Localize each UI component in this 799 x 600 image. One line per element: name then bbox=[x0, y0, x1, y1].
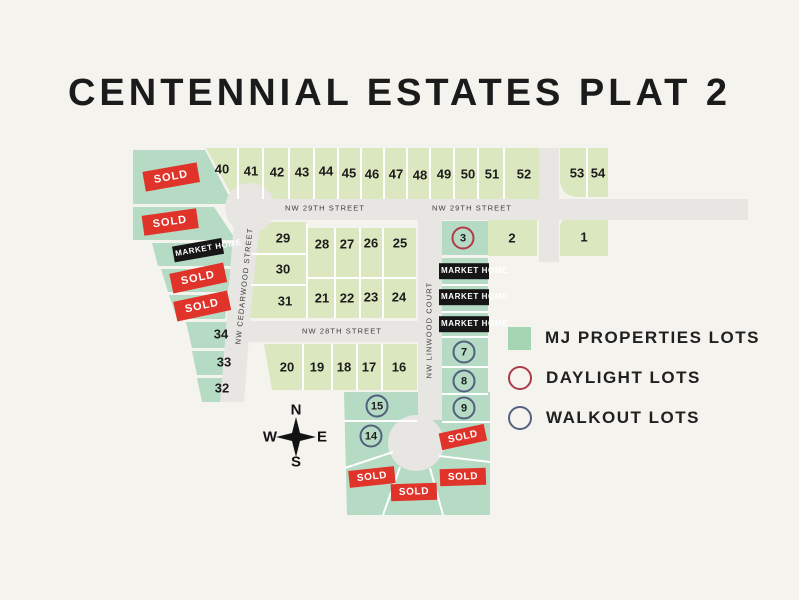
compass-west-label: W bbox=[263, 429, 277, 446]
lot-number: 31 bbox=[278, 294, 292, 309]
sold-badge: SOLD bbox=[142, 162, 199, 191]
lot-number: 23 bbox=[364, 290, 378, 305]
walkout-lot-number: 14 bbox=[360, 425, 383, 448]
lot-number: 43 bbox=[295, 165, 309, 180]
map-labels: 4041424344454647484950515253542129303128… bbox=[0, 0, 799, 600]
lot-number: 25 bbox=[393, 236, 407, 251]
street-name-label: NW 28TH STREET bbox=[302, 327, 382, 336]
lot-number: 28 bbox=[315, 237, 329, 252]
lot-number: 44 bbox=[319, 164, 333, 179]
street-name-label: NW 29TH STREET bbox=[432, 204, 512, 213]
lot-number: 16 bbox=[392, 360, 406, 375]
lot-number: 18 bbox=[337, 360, 351, 375]
legend-label-mj-properties: MJ PROPERTIES LOTS bbox=[545, 328, 760, 348]
lot-number: 52 bbox=[517, 167, 531, 182]
walkout-lot-number: 9 bbox=[453, 397, 476, 420]
sold-badge: SOLD bbox=[142, 208, 199, 235]
market-home-badge: MARKET HOME bbox=[172, 238, 224, 262]
sold-badge: SOLD bbox=[440, 468, 487, 487]
lot-number: 53 bbox=[570, 166, 584, 181]
lot-number: 19 bbox=[310, 360, 324, 375]
compass-east-label: E bbox=[317, 429, 327, 446]
street-name-label: NW 29TH STREET bbox=[285, 204, 365, 213]
sold-badge: SOLD bbox=[169, 263, 227, 294]
lot-number: 47 bbox=[389, 167, 403, 182]
compass-rose: N E S W bbox=[256, 397, 336, 477]
green-square-swatch-icon bbox=[508, 327, 531, 350]
compass-south-label: S bbox=[291, 454, 301, 471]
sold-badge: SOLD bbox=[439, 424, 488, 450]
legend-item-mj-properties-lots: MJ PROPERTIES LOTS bbox=[508, 325, 760, 351]
street-name-label: NW LINWOOD COURT bbox=[425, 282, 434, 379]
legend-label-daylight: DAYLIGHT LOTS bbox=[546, 368, 701, 388]
lot-number: 24 bbox=[392, 290, 406, 305]
lot-number: 22 bbox=[340, 291, 354, 306]
lot-number: 21 bbox=[315, 291, 329, 306]
lot-number: 33 bbox=[217, 355, 231, 370]
lot-number: 50 bbox=[461, 167, 475, 182]
lot-number: 34 bbox=[214, 327, 228, 342]
walkout-lot-number: 8 bbox=[453, 370, 476, 393]
lot-number: 29 bbox=[276, 231, 290, 246]
lot-number: 20 bbox=[280, 360, 294, 375]
lot-number: 54 bbox=[591, 166, 605, 181]
compass-north-label: N bbox=[291, 402, 302, 419]
lot-number: 41 bbox=[244, 164, 258, 179]
market-home-badge: MARKET HOME bbox=[439, 289, 489, 305]
sold-badge: SOLD bbox=[173, 291, 231, 322]
legend-label-walkout: WALKOUT LOTS bbox=[546, 408, 700, 428]
lot-number: 32 bbox=[215, 381, 229, 396]
lot-number: 26 bbox=[364, 236, 378, 251]
lot-number: 51 bbox=[485, 167, 499, 182]
lot-number: 40 bbox=[215, 162, 229, 177]
lot-number: 2 bbox=[508, 231, 515, 246]
lot-number: 46 bbox=[365, 167, 379, 182]
lot-number: 27 bbox=[340, 237, 354, 252]
walkout-lot-number: 15 bbox=[366, 395, 389, 418]
lot-number: 42 bbox=[270, 165, 284, 180]
market-home-badge: MARKET HOME bbox=[439, 316, 489, 332]
daylight-lot-number: 3 bbox=[452, 227, 475, 250]
blue-circle-swatch-icon bbox=[508, 406, 532, 430]
legend-item-daylight-lots: DAYLIGHT LOTS bbox=[508, 365, 760, 391]
lot-number: 17 bbox=[362, 360, 376, 375]
lot-number: 45 bbox=[342, 166, 356, 181]
lot-number: 48 bbox=[413, 168, 427, 183]
walkout-lot-number: 7 bbox=[453, 341, 476, 364]
sold-badge: SOLD bbox=[391, 483, 438, 502]
legend: MJ PROPERTIES LOTS DAYLIGHT LOTS WALKOUT… bbox=[508, 325, 760, 431]
lot-number: 30 bbox=[276, 262, 290, 277]
legend-item-walkout-lots: WALKOUT LOTS bbox=[508, 405, 760, 431]
lot-number: 1 bbox=[580, 230, 587, 245]
market-home-badge: MARKET HOME bbox=[439, 263, 489, 279]
lot-number: 49 bbox=[437, 167, 451, 182]
sold-badge: SOLD bbox=[348, 466, 396, 488]
plat-map-page: CENTENNIAL ESTATES PLAT 2 bbox=[0, 0, 799, 600]
red-circle-swatch-icon bbox=[508, 366, 532, 390]
